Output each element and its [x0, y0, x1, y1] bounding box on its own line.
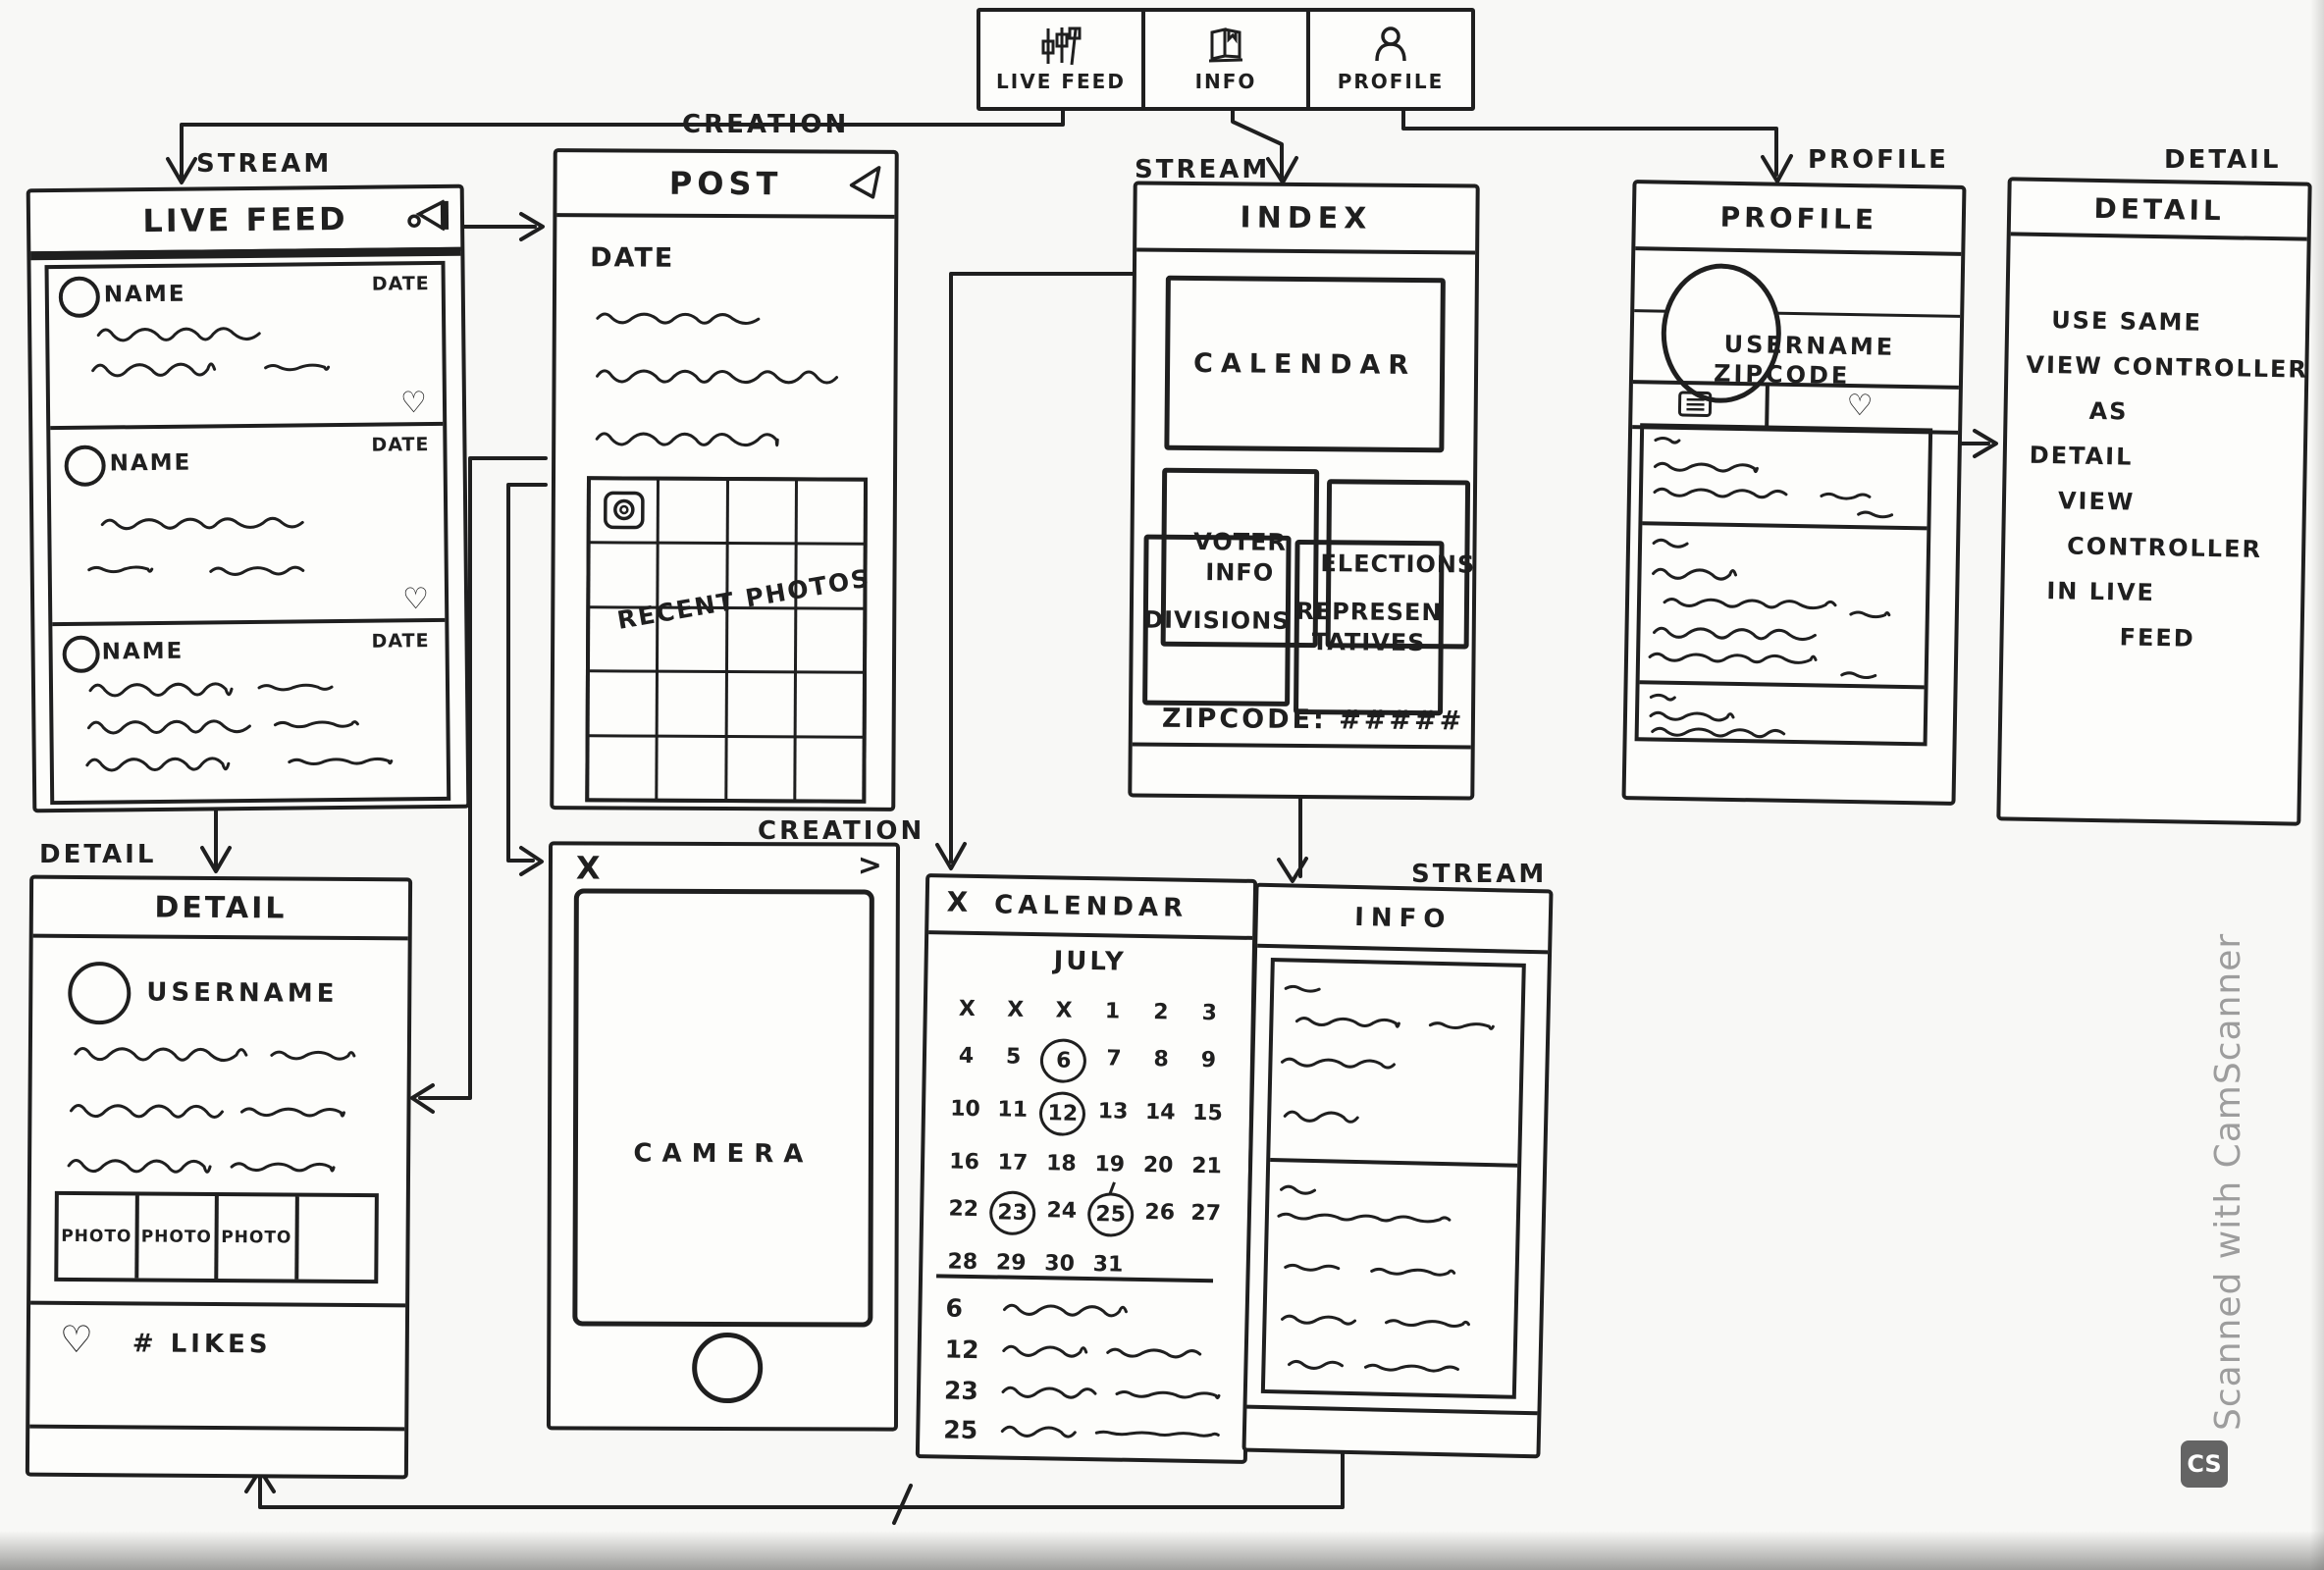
feed-card-date: DATE: [372, 273, 430, 295]
note-line: VIEW CONTROLLER: [2026, 342, 2296, 392]
calendar-day-cell: 16: [944, 1142, 985, 1181]
calendar-week-row: 101112131415: [943, 1089, 1231, 1138]
calendar-day-cell: 19: [1089, 1145, 1131, 1184]
note-line: CONTROLLER: [2023, 523, 2293, 573]
screen-profile: PROFILE USERNAME ZIPCODE ♡: [1622, 180, 1967, 806]
camera-viewfinder-label: CAMERA: [578, 1138, 869, 1169]
shutter-button: [692, 1333, 763, 1403]
screen-detail-reuse: DETAIL USE SAMEVIEW CONTROLLERASDETAILVI…: [1996, 177, 2311, 825]
calendar-week-row: 161718192021: [942, 1142, 1230, 1185]
tab-profile: PROFILE: [1306, 12, 1471, 107]
text-squiggle: [257, 682, 336, 693]
text-squiggle: [85, 756, 233, 773]
tab-bar: LIVE FEED INFO PROFILE: [977, 8, 1475, 111]
likes-label: # LIKES: [132, 1329, 272, 1359]
grid-list-icon: [1677, 391, 1713, 419]
screen-calendar: X CALENDAR JULY XXX123456789101112131415…: [916, 873, 1257, 1464]
avatar: [62, 636, 99, 673]
calendar-day-cell: 8: [1140, 1040, 1182, 1079]
live-feed-title: LIVE FEED: [142, 200, 348, 239]
screen-index: INDEX CALENDAR VOTERINFOELECTIONSDIVISIO…: [1128, 181, 1479, 800]
calendar-day-cell: 18: [1041, 1144, 1083, 1183]
note-line: AS: [2025, 388, 2295, 438]
detail-username: USERNAME: [146, 977, 338, 1008]
detail-feed-title: DETAIL: [154, 890, 287, 925]
calendar-day-cell: 27: [1186, 1194, 1227, 1233]
calendar-day-cell: 6: [1040, 1038, 1087, 1083]
button-label-line: REPRESEN: [1295, 597, 1442, 628]
note-line: IN LIVE: [2022, 568, 2292, 618]
text-squiggle: [264, 362, 333, 373]
flow-label-detail-right: DETAIL: [2164, 145, 2281, 175]
avatar: [59, 277, 100, 318]
flow-label-profile: PROFILE: [1808, 145, 1949, 175]
calendar-day-cell: 12: [1039, 1091, 1086, 1136]
calendar-event-row: 25: [943, 1416, 1222, 1449]
detail-reuse-title: DETAIL: [2093, 191, 2225, 226]
segment-separator: [1765, 386, 1769, 427]
note-line: DETAIL: [2024, 433, 2294, 483]
section-divider: [30, 1301, 405, 1308]
send-icon: [845, 166, 884, 201]
event-day-number: 25: [943, 1416, 984, 1445]
feed-card-date: DATE: [371, 434, 429, 456]
camscanner-logo: CS: [2181, 1440, 2228, 1488]
recent-photos-grid: [585, 476, 868, 803]
note-line: FEED: [2021, 613, 2291, 663]
camera-next-button: >: [858, 848, 882, 882]
text-squiggle: [209, 564, 307, 577]
tab-info: INFO: [1141, 12, 1306, 107]
note-line: VIEW: [2024, 478, 2294, 528]
calendar-day-cell: X: [1043, 991, 1084, 1030]
calendar-day-cell: 26: [1139, 1193, 1181, 1232]
post-title: POST: [669, 165, 783, 203]
calendar-month-label: JULY: [927, 944, 1251, 979]
screen-post: POST DATE R: [550, 148, 899, 811]
calendar-day-cell: 1: [1092, 992, 1134, 1031]
event-text-squiggle: [1094, 1429, 1222, 1439]
calendar-week-row: XXX123: [944, 989, 1232, 1032]
calendar-day-grid: XXX1234567891011121314151617181920212223…: [940, 989, 1232, 1294]
calendar-day-cell: 20: [1137, 1146, 1179, 1185]
likes-tab-heart-icon: ♡: [1846, 392, 1873, 421]
camscanner-watermark: Scanned with CamScanner: [2208, 705, 2248, 1431]
camera-close-button: X: [576, 849, 601, 886]
text-squiggle: [273, 719, 361, 730]
feed-card-author: NAME: [109, 450, 191, 477]
profile-post-list: [1635, 423, 1933, 746]
bottom-bar-line: [1246, 1405, 1537, 1416]
bottom-bar-line: [29, 1425, 404, 1432]
screen-info: INFO: [1241, 883, 1553, 1459]
calendar-day-cell: 21: [1187, 1147, 1228, 1186]
calendar-day-cell: 22: [943, 1189, 984, 1229]
calendar-day-cell: X: [995, 990, 1036, 1029]
info-title: INFO: [1354, 903, 1452, 934]
flow-label-detail-left: DETAIL: [39, 840, 156, 869]
photo-thumb: PHOTO: [218, 1196, 298, 1280]
avatar: [68, 962, 131, 1024]
event-text-squiggle: [1106, 1346, 1204, 1360]
screen-live-feed: LIVE FEED NAMEDATE♡NAMEDATE♡NAMEDATE: [26, 184, 471, 813]
event-text-squiggle: [1000, 1424, 1079, 1439]
feed-card: NAMEDATE♡: [50, 426, 445, 626]
text-squiggle: [86, 718, 253, 736]
photo-thumb-empty: [298, 1197, 375, 1281]
text-squiggle: [100, 515, 306, 531]
representatives-button: REPRESENTATIVES: [1294, 540, 1445, 715]
tab-live-feed: LIVE FEED: [980, 12, 1141, 107]
calendar-day-cell: 4: [946, 1036, 987, 1075]
scan-edge-shadow-right: [2310, 0, 2324, 1570]
screen-camera: X > CAMERA: [547, 841, 900, 1431]
camera-icon: [601, 490, 646, 533]
post-date-label: DATE: [590, 242, 674, 273]
calendar-day-cell: 7: [1093, 1039, 1135, 1078]
tab-live-feed-label: LIVE FEED: [996, 70, 1126, 93]
bottom-bar-line: [1133, 742, 1471, 749]
calendar-week-row: 222324252627: [941, 1189, 1229, 1238]
like-heart-icon: ♡: [400, 389, 427, 418]
calendar-day-cell: 23: [989, 1190, 1036, 1235]
calendar-event-row: 12: [945, 1335, 1204, 1369]
calendar-day-cell: 3: [1188, 994, 1230, 1033]
profile-title: PROFILE: [1719, 200, 1877, 235]
calendar-title: CALENDAR: [994, 890, 1188, 922]
zipcode-label: ZIPCODE: #####: [1162, 704, 1465, 737]
wireframe-sketch-page: LIVE FEED INFO PROFILE S: [0, 0, 2324, 1570]
calendar-day-cell: 9: [1188, 1041, 1230, 1080]
tab-info-label: INFO: [1195, 70, 1257, 93]
button-label-line: TATIVES: [1312, 627, 1426, 658]
person-icon: [1370, 26, 1411, 67]
calendar-event-row: 6: [945, 1294, 1130, 1326]
calendar-event-row: 23: [944, 1377, 1223, 1410]
profile-username: USERNAME: [1723, 331, 1895, 361]
heart-icon: ♡: [60, 1321, 93, 1358]
text-squiggle: [87, 564, 156, 575]
calendar-day-cell: 11: [992, 1090, 1033, 1129]
calendar-day-cell: 5: [993, 1037, 1034, 1076]
event-text-squiggle: [1002, 1343, 1090, 1359]
flow-label-stream-info: STREAM: [1411, 860, 1547, 889]
camera-roll-cell: [591, 480, 658, 542]
calendar-day-cell: 13: [1092, 1092, 1134, 1131]
feed-card: NAMEDATE: [52, 622, 447, 801]
calendar-day-cell: 14: [1139, 1093, 1181, 1132]
photo-thumb: PHOTO: [138, 1195, 219, 1279]
event-text-squiggle: [1115, 1388, 1223, 1400]
calendar-day-cell: 25: [1087, 1192, 1135, 1237]
scan-edge-shadow-bottom: [0, 1531, 2324, 1570]
calendar-day-cell: X: [946, 989, 987, 1028]
like-heart-icon: ♡: [402, 585, 429, 614]
divisions-button: DIVISIONS: [1142, 535, 1292, 706]
text-squiggle: [91, 361, 219, 378]
flow-label-stream-livefeed: STREAM: [196, 149, 332, 179]
calendar-day-cell: 24: [1041, 1191, 1083, 1230]
calendar-day-cell: 2: [1140, 993, 1182, 1032]
event-text-squiggle: [1002, 1302, 1130, 1318]
text-squiggle: [88, 681, 236, 699]
flow-label-stream-index: STREAM: [1135, 155, 1270, 184]
sliders-icon: [1038, 26, 1083, 67]
photo-strip: PHOTOPHOTOPHOTO: [54, 1191, 379, 1283]
feed-card-author: NAME: [101, 639, 184, 665]
tab-profile-label: PROFILE: [1338, 70, 1445, 93]
calendar-button: CALENDAR: [1164, 276, 1446, 452]
event-day-number: 12: [945, 1335, 986, 1365]
flow-label-creation-post: CREATION: [682, 110, 849, 139]
photo-thumb: PHOTO: [58, 1195, 138, 1279]
detail-reuse-note: USE SAMEVIEW CONTROLLERASDETAILVIEWCONTR…: [2021, 297, 2296, 663]
text-squiggle: [288, 756, 396, 766]
camera-viewfinder: CAMERA: [572, 888, 874, 1327]
calendar-day-cell: 17: [992, 1143, 1033, 1182]
calendar-day-cell: 10: [945, 1089, 986, 1128]
index-title: INDEX: [1240, 200, 1372, 235]
avatar: [64, 445, 105, 487]
feed-card: NAMEDATE♡: [49, 265, 444, 430]
calendar-day-cell: 15: [1188, 1094, 1229, 1133]
event-text-squiggle: [1001, 1385, 1099, 1400]
calendar-week-row: 456789: [944, 1036, 1232, 1085]
book-icon: [1205, 26, 1246, 67]
text-squiggle: [96, 326, 263, 343]
event-day-number: 23: [944, 1377, 985, 1406]
button-label-line: DIVISIONS: [1143, 604, 1291, 636]
note-line: USE SAME: [2027, 297, 2297, 347]
info-card-list: [1261, 958, 1526, 1399]
event-day-number: 6: [945, 1294, 986, 1324]
feed-card-date: DATE: [371, 630, 429, 653]
megaphone-icon: [403, 198, 452, 236]
live-feed-card-list: NAMEDATE♡NAMEDATE♡NAMEDATE: [44, 261, 450, 805]
calendar-close-button: X: [946, 885, 973, 917]
screen-detail-feed: DETAIL USERNAME PHOTOPHOTOPHOTO ♡ # LIKE…: [26, 875, 412, 1480]
feed-card-author: NAME: [104, 282, 186, 308]
